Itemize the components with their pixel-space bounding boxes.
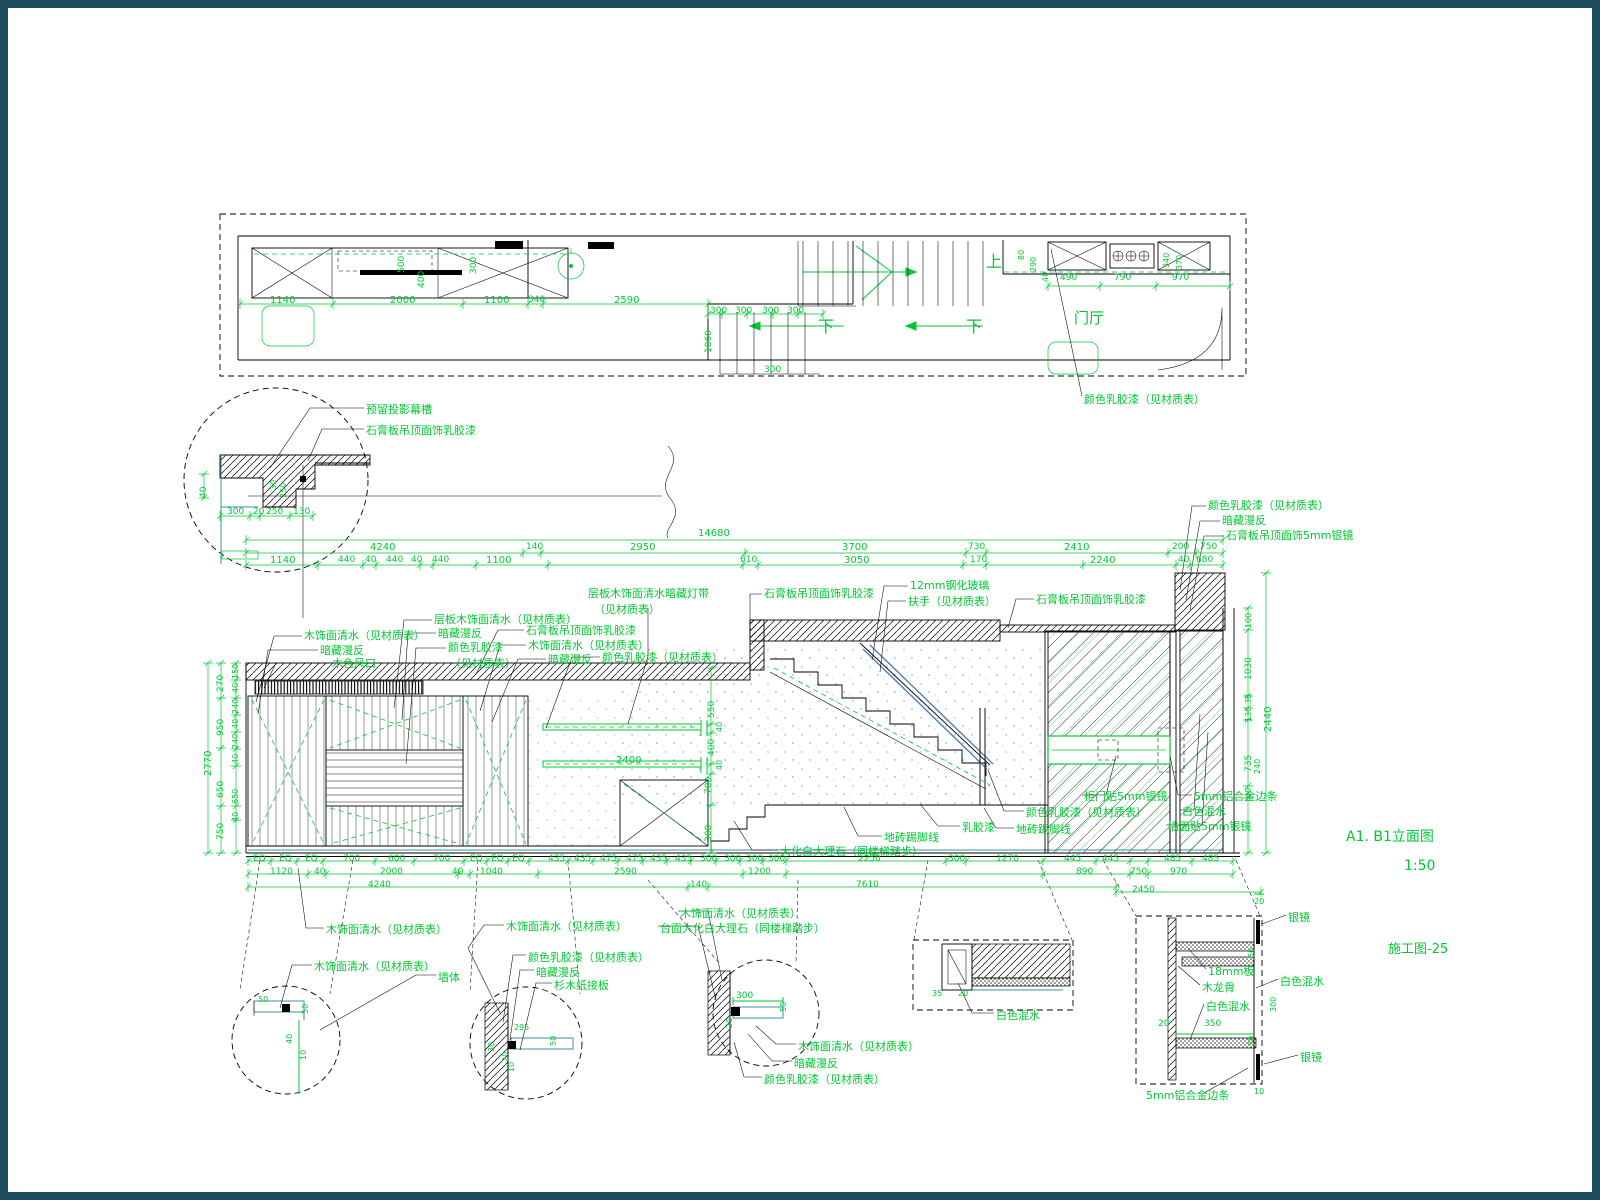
dim-text: 300 <box>700 855 717 864</box>
dim-text: 950 <box>217 719 226 736</box>
dim-text: 40 <box>1042 272 1050 282</box>
dim-text: 300 <box>735 307 752 316</box>
dim-text: 2770 <box>204 751 214 776</box>
dim-text: 40 <box>716 722 724 732</box>
dim-text: 40 <box>286 1034 294 1044</box>
dim-text: 300 <box>470 257 479 274</box>
dim-text: 170 <box>970 556 987 565</box>
dim-text: 1100 <box>484 296 509 306</box>
dim-text: 10 <box>1254 1088 1264 1096</box>
dim-text: 440 <box>338 556 355 565</box>
dim-text: 20 <box>1158 1020 1169 1029</box>
dim-text: 1030 <box>1245 657 1254 680</box>
cad-label: 颜色乳胶漆 <box>448 642 503 653</box>
dim-text: 40 <box>365 556 376 565</box>
dim-text: 240 <box>232 699 240 714</box>
dim-text: 750 <box>1130 868 1147 877</box>
cad-label: 大化白大理石（同楼梯踏步） <box>780 846 923 857</box>
dim-text: 300 <box>710 307 727 316</box>
dim-text: 300 <box>736 992 753 1001</box>
dim-text: 50 <box>258 996 268 1004</box>
cad-label: 地砖踢脚线 <box>884 832 939 843</box>
cad-label: 18mm板 <box>1208 966 1254 977</box>
dim-text: EQ <box>512 855 525 864</box>
cad-label: 石膏板吊顶面饰5mm银镜 <box>1226 530 1353 541</box>
cad-label: 柜门贴5mm银镜 <box>1084 791 1167 802</box>
dim-text: 490 <box>1060 274 1077 283</box>
cad-label: 扶手（见材质表） <box>908 596 996 607</box>
dim-text: 2250 <box>858 855 881 864</box>
cad-label: 白色混水 <box>996 1010 1040 1021</box>
dim-text: 20 <box>502 1052 510 1062</box>
dim-text: 300 <box>227 508 244 517</box>
dim-text: 700 <box>433 855 450 864</box>
cad-label: 木饰面清水（见材质表） <box>326 924 447 935</box>
dim-text: 40 <box>232 754 240 764</box>
cad-label: 乳胶漆 <box>962 822 995 833</box>
cad-label: 暗藏漫反 <box>320 645 364 656</box>
cad-label: 白色混水 <box>1182 806 1226 817</box>
dim-text: 4240 <box>368 881 391 890</box>
dim-text: 2450 <box>1132 886 1155 895</box>
cad-label: 杉木纸接板 <box>554 980 609 991</box>
dim-text: 30 <box>270 480 278 490</box>
dim-text: 550 <box>708 701 717 718</box>
cad-label: 颜色乳胶漆（见材质表） <box>1208 500 1329 511</box>
dim-text: 1140 <box>270 556 295 566</box>
cad-label: 预留投影幕槽 <box>366 404 432 415</box>
cad-label: 木饰面清水（见材质表） <box>680 908 801 919</box>
dim-text: 40 <box>232 719 240 729</box>
dim-text: 20 <box>726 1018 734 1028</box>
dim-text: 10 <box>300 1050 308 1060</box>
dim-text: 300 <box>762 307 779 316</box>
cad-label: 白色混水 <box>1206 1001 1250 1012</box>
dim-text: EQ <box>305 855 318 864</box>
dim-text: 7610 <box>856 881 879 890</box>
dim-text: 3050 <box>844 556 869 566</box>
dim-text: 240 <box>1254 759 1262 774</box>
dim-text: 130 <box>1245 707 1253 722</box>
cad-label: 石膏板吊顶面饰乳胶漆 <box>526 625 636 636</box>
dim-text: 295 <box>514 1024 529 1032</box>
cad-label: 墙面贴5mm银镜 <box>1168 821 1251 832</box>
skirting-section-detail <box>913 940 1073 1010</box>
dim-text: 370 <box>1176 255 1184 270</box>
cad-label: 石膏板吊顶面饰乳胶漆 <box>1036 594 1146 605</box>
dim-text: 500 <box>398 256 407 273</box>
cad-label: 颜色乳胶漆（见材质表） <box>602 652 723 663</box>
dim-text: 4240 <box>370 543 395 553</box>
cad-label: 门厅 <box>1074 311 1104 326</box>
dim-text: 400 <box>708 739 717 756</box>
cad-label: 木饰面清水（见材质表） <box>798 1041 919 1052</box>
dim-text: 2400 <box>616 756 641 766</box>
dim-text: 890 <box>1076 868 1093 877</box>
dim-text: EQ <box>253 855 266 864</box>
cad-label: 墙体 <box>438 972 460 983</box>
ceiling-cove-detail <box>184 388 676 618</box>
dim-text: 35 <box>932 990 942 998</box>
dim-text: 40 <box>232 683 240 693</box>
dim-text: 20 <box>958 990 968 998</box>
cad-label: 木饰面清水（见材质表） <box>314 961 435 972</box>
dim-text: 700 <box>343 855 360 864</box>
cad-label: 下 <box>818 319 834 335</box>
cad-label: 暗藏漫反 <box>438 628 482 639</box>
cad-label: 暗藏漫反 <box>794 1058 838 1069</box>
cad-label: 12mm钢化玻璃 <box>910 580 989 591</box>
dim-text: 300 <box>764 366 781 375</box>
dim-text: 1270 <box>996 855 1019 864</box>
cad-drawing-sheet: 上下下门厅颜色乳胶漆（见材质表）114020001100340259030030… <box>0 0 1600 1200</box>
cad-label: 木色风口 <box>332 658 376 669</box>
dim-text: 970 <box>1172 274 1189 283</box>
dim-text: 50 <box>780 1002 788 1012</box>
dim-text: 130 <box>293 508 310 517</box>
dim-text: 1060 <box>705 330 714 353</box>
dim-text: 1140 <box>270 296 295 306</box>
dim-text: 40 <box>1178 556 1189 565</box>
cad-label: 颜色乳胶漆（见材质表） <box>1084 394 1205 405</box>
dim-text: 300 <box>768 855 785 864</box>
dim-text: 1100 <box>486 556 511 566</box>
dim-text: 140 <box>690 881 707 890</box>
cad-label: 木饰面清水（见材质表） <box>528 640 649 651</box>
dim-text: 30 <box>1245 694 1253 704</box>
cad-label: 暗藏漫反 <box>1222 515 1266 526</box>
cad-label: 暗藏漫反 <box>548 654 592 665</box>
dim-text: 150 <box>232 664 240 679</box>
dim-text: 475 <box>600 855 617 864</box>
dim-text: 240 <box>232 734 240 749</box>
dim-text: 250 <box>280 483 288 498</box>
dim-text: 600 <box>388 855 405 864</box>
dim-text: 14680 <box>698 529 730 539</box>
dim-text: EQ <box>470 855 483 864</box>
cad-label: 5mm铝合金边条 <box>1146 1090 1229 1101</box>
dim-text: 50 <box>550 1036 558 1046</box>
dim-text: 2440 <box>1264 707 1274 732</box>
cad-label: 5mm铝合金边条 <box>1194 791 1277 802</box>
dim-text: 40 <box>314 868 325 877</box>
dim-text: 340 <box>1163 253 1171 268</box>
dim-text: 610 <box>740 556 757 565</box>
dim-text: 485 <box>1202 855 1219 864</box>
dim-text: 40 <box>200 487 209 498</box>
dim-text: 2590 <box>614 296 639 306</box>
dim-text: 290 <box>1030 257 1038 272</box>
cad-label: 暗藏漫反 <box>536 967 580 978</box>
dim-text: 440 <box>432 556 449 565</box>
dim-text: 2590 <box>614 868 637 877</box>
dim-text: 435 <box>650 855 667 864</box>
dim-text: 200 <box>1172 543 1189 552</box>
dim-text: 300 <box>724 855 741 864</box>
dim-text: 435 <box>548 855 565 864</box>
dim-text: 100 <box>1245 613 1253 628</box>
dim-text: 445 <box>1102 855 1119 864</box>
cad-label: 木饰面清水（见材质表） <box>506 921 627 932</box>
cad-label: 白色混水 <box>1280 976 1324 987</box>
cad-label: 下 <box>966 319 982 335</box>
dim-text: 2950 <box>630 543 655 553</box>
dim-text: 50 <box>1248 948 1256 958</box>
cad-label: 颜色乳胶漆（见材质表） <box>1026 807 1147 818</box>
dim-text: 300 <box>948 855 965 864</box>
dim-text: 40 <box>232 812 240 822</box>
dim-text: 30 <box>488 1042 496 1052</box>
dim-text: 680 <box>1196 556 1213 565</box>
view-title: A1. B1立面图 <box>1346 826 1434 846</box>
dim-text: 2000 <box>380 868 403 877</box>
cad-label: 颜色乳胶漆（见材质表） <box>528 952 649 963</box>
dim-text: 435 <box>574 855 591 864</box>
sheet-number: 施工图-25 <box>1388 938 1448 957</box>
cad-label: 颜色乳胶漆（见材质表） <box>764 1074 885 1085</box>
dim-text: 300 <box>787 307 804 316</box>
dim-text: 350 <box>1204 1020 1221 1029</box>
dim-text: 20 <box>253 508 264 517</box>
dim-text: 1200 <box>748 868 771 877</box>
dim-text: 2000 <box>390 296 415 306</box>
mirror-cabinet-section-detail <box>1136 894 1264 1084</box>
dim-text: 400 <box>418 271 427 288</box>
dim-text: 790 <box>1114 274 1131 283</box>
dim-text: EQ <box>279 855 292 864</box>
cad-label: （见材质表） <box>450 658 516 669</box>
dim-text: 1040 <box>480 868 503 877</box>
dim-text: 340 <box>528 296 545 305</box>
dim-text: 475 <box>626 855 643 864</box>
cad-label: 银镜 <box>1300 1052 1322 1063</box>
cad-label: 层板木饰面清水暗藏灯带 <box>588 588 709 599</box>
dim-text: 435 <box>675 855 692 864</box>
cad-label: 石膏板吊顶面饰乳胶漆 <box>764 588 874 599</box>
dim-text: 750 <box>1200 543 1217 552</box>
dim-text: 440 <box>386 556 403 565</box>
dim-text: 50 <box>302 1004 310 1014</box>
cad-label: 木龙骨 <box>1202 982 1235 993</box>
dim-text: 40 <box>716 760 724 770</box>
dim-text: 300 <box>746 855 763 864</box>
dim-text: 50 <box>1248 1036 1256 1046</box>
dim-text: 3700 <box>842 543 867 553</box>
dim-text: 40 <box>411 556 422 565</box>
dim-text: 445 <box>1064 855 1081 864</box>
dim-text: 40 <box>452 868 463 877</box>
dim-text: 730 <box>968 543 985 552</box>
cad-label: 石膏板吊顶面饰乳胶漆 <box>366 425 476 436</box>
cad-label: 木饰面清水（见材质表） <box>304 630 425 641</box>
dim-text: 140 <box>526 543 543 552</box>
ceiling-plan-view <box>220 214 1246 396</box>
cad-label: 台面大化白大理石（同楼梯踏步） <box>660 923 825 934</box>
dim-text: 2240 <box>1090 556 1115 566</box>
dim-text: 650 <box>232 789 240 804</box>
cad-label: 银镜 <box>1288 912 1310 923</box>
dim-text: 20 <box>1254 898 1264 906</box>
view-scale: 1:50 <box>1404 858 1435 874</box>
dim-text: 10 <box>508 1062 516 1072</box>
dim-text: EQ <box>491 855 504 864</box>
dim-text: 650 <box>217 781 226 798</box>
cad-label: （见材质表） <box>594 604 660 615</box>
dim-text: 270 <box>217 675 226 692</box>
drawing-canvas <box>8 8 1600 1200</box>
dim-text: 700 <box>705 777 714 794</box>
dim-text: 1120 <box>270 868 293 877</box>
dim-text: 970 <box>1170 868 1187 877</box>
dim-text: 300 <box>705 825 714 842</box>
cad-label: 地砖踢脚线 <box>1016 824 1071 835</box>
dim-text: 750 <box>217 823 226 840</box>
dim-text: 300 <box>1270 997 1278 1012</box>
cad-label: 上 <box>986 254 1002 270</box>
dim-text: 80 <box>1018 250 1026 260</box>
dim-text: 250 <box>266 508 283 517</box>
dim-text: 2410 <box>1064 543 1089 553</box>
dim-text: 485 <box>1164 855 1181 864</box>
